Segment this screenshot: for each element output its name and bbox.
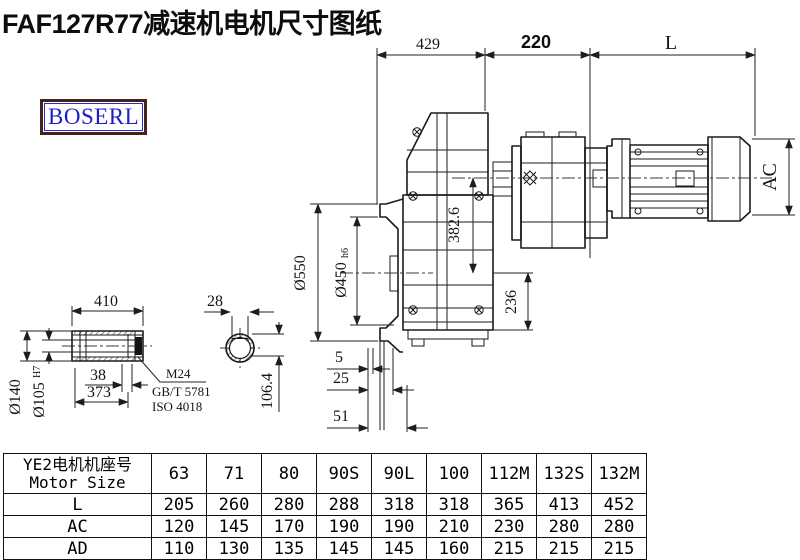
table-cell: 280: [537, 516, 592, 538]
table-cell: 170: [262, 516, 317, 538]
col-header: 132M: [592, 454, 647, 494]
dim-top-chain: [377, 48, 755, 258]
table-cell: 452: [592, 494, 647, 516]
row-label: AD: [4, 538, 152, 560]
dim-5-label: 5: [335, 349, 343, 366]
table-cell: 205: [152, 494, 207, 516]
dim-373-label: 373: [87, 384, 111, 401]
col-header: 100: [427, 454, 482, 494]
table-cell: 215: [592, 538, 647, 560]
table-cell: 145: [372, 538, 427, 560]
table-cell: 318: [427, 494, 482, 516]
motor-outline: [607, 137, 750, 221]
dim-220-label: 220: [521, 32, 551, 52]
table-cell: 413: [537, 494, 592, 516]
motor-size-table: YE2电机机座号 Motor Size 63 71 80 90S 90L 100…: [3, 453, 647, 560]
table-cell: 135: [262, 538, 317, 560]
technical-drawing: 429 220 L AC 382.6 236 Ø550 Ø450 h6 5 25…: [0, 0, 800, 452]
table-row: AC 120 145 170 190 190 210 230 280 280: [4, 516, 647, 538]
table-cell: 230: [482, 516, 537, 538]
table-cell: 260: [207, 494, 262, 516]
table-row: L 205 260 280 288 318 318 365 413 452: [4, 494, 647, 516]
dim-106-label: 106.4: [259, 373, 276, 409]
gear-unit-outline: [380, 113, 493, 430]
dim-38-label: 38: [90, 367, 106, 384]
brand-logo: BOSERL: [40, 99, 147, 135]
dim-51-label: 51: [333, 408, 349, 425]
dim-410-label: 410: [94, 293, 118, 310]
dim-38-373: [75, 364, 148, 408]
table-row: AD 110 130 135 145 145 160 215 215 215: [4, 538, 647, 560]
table-cell: 160: [427, 538, 482, 560]
table-cell: 215: [537, 538, 592, 560]
dim-105-label: Ø105: [31, 382, 48, 418]
table-cell: 288: [317, 494, 372, 516]
table-cell: 145: [207, 516, 262, 538]
col-header: 71: [207, 454, 262, 494]
table-cell: 190: [372, 516, 427, 538]
dim-450-label: Ø450: [333, 262, 350, 298]
table-cell: 120: [152, 516, 207, 538]
col-header: 112M: [482, 454, 537, 494]
table-cell: 280: [592, 516, 647, 538]
table-cell: 318: [372, 494, 427, 516]
bore-section-outline: [226, 334, 254, 362]
brand-logo-text: BOSERL: [44, 103, 143, 131]
dim-105-suffix: H7: [32, 366, 43, 378]
row-label: L: [4, 494, 152, 516]
table-header-row: YE2电机机座号 Motor Size 63 71 80 90S 90L 100…: [4, 454, 647, 494]
table-cell: 210: [427, 516, 482, 538]
dim-382-label: 382.6: [446, 207, 463, 243]
table-header-cn: YE2电机机座号: [4, 456, 151, 474]
standard-gb-label: GB/T 5781: [152, 384, 211, 399]
table-cell: 190: [317, 516, 372, 538]
col-header: 90L: [372, 454, 427, 494]
table-cell: 215: [482, 538, 537, 560]
row-label: AC: [4, 516, 152, 538]
dim-25-label: 25: [333, 370, 349, 387]
col-header: 80: [262, 454, 317, 494]
dim-550-label: Ø550: [292, 255, 309, 291]
col-header: 90S: [317, 454, 372, 494]
dim-28-label: 28: [207, 293, 223, 310]
table-cell: 145: [317, 538, 372, 560]
dim-ac-label: AC: [759, 163, 781, 191]
table-header-en: Motor Size: [4, 474, 151, 492]
thread-label: M24: [166, 366, 191, 381]
dim-L-label: L: [665, 32, 677, 54]
standard-iso-label: ISO 4018: [152, 399, 202, 414]
table-cell: 365: [482, 494, 537, 516]
table-cell: 130: [207, 538, 262, 560]
dim-236-label: 236: [503, 290, 520, 314]
dim-450: [350, 217, 394, 325]
table-cell: 110: [152, 538, 207, 560]
dim-140-label: Ø140: [7, 379, 24, 415]
col-header: 63: [152, 454, 207, 494]
col-header: 132S: [537, 454, 592, 494]
table-header-motor-size: YE2电机机座号 Motor Size: [4, 454, 152, 494]
dim-429-label: 429: [416, 36, 440, 53]
page-title: FAF127R77减速机电机尺寸图纸: [2, 2, 382, 41]
dim-450-suffix: h6: [340, 248, 351, 258]
table-cell: 280: [262, 494, 317, 516]
